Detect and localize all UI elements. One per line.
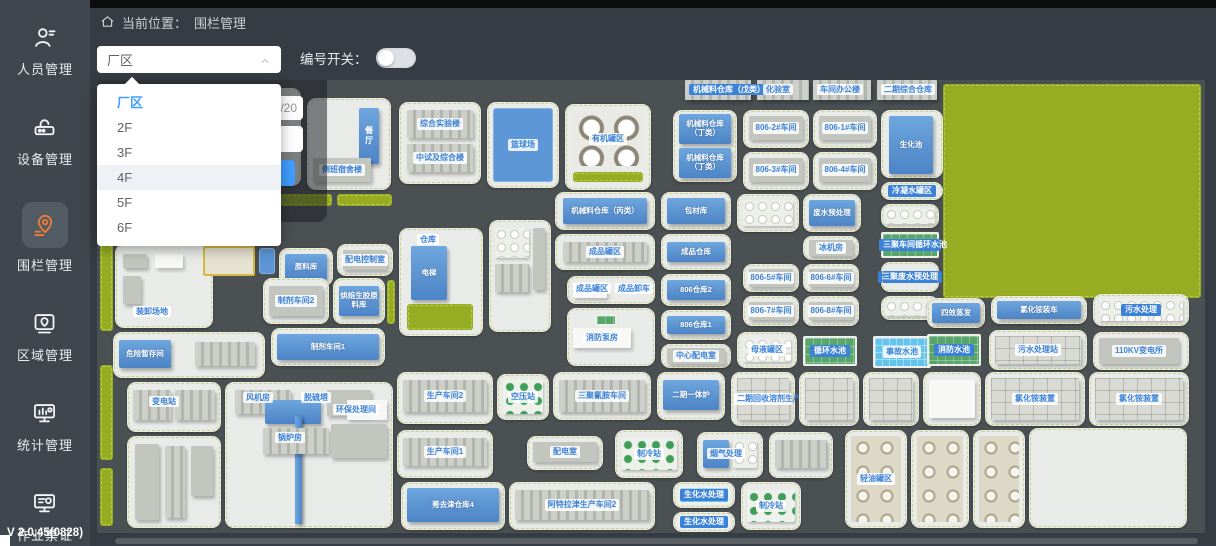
- map-chip: 二期综合仓库: [881, 84, 935, 95]
- map-cx: [805, 378, 853, 420]
- map-bb: 二期一体炉: [663, 380, 719, 410]
- map-bg: [135, 444, 159, 520]
- sidebar-item-label: 统计管理: [17, 435, 73, 454]
- building-label: 806仓库1: [680, 321, 712, 330]
- map-gd: 制冷站: [747, 490, 795, 522]
- dropdown-option-厂区[interactable]: 厂区: [97, 90, 281, 115]
- map-bw: [155, 254, 183, 268]
- building-label: 806-5#车间: [748, 272, 795, 283]
- building-label: 二期回收溶剂生产装置: [734, 393, 792, 404]
- toggle-knob: [378, 50, 394, 66]
- map-br: [175, 390, 215, 420]
- building-label: 机械料仓库（丁类）: [679, 154, 731, 171]
- map-bb: 成品仓库: [667, 242, 725, 262]
- building-label: 生化水处理: [680, 489, 728, 500]
- building-label: 三聚车间循环水池: [879, 239, 941, 250]
- number-toggle-switch[interactable]: [376, 48, 416, 68]
- map-chip: 机械料仓库（戊类）: [689, 84, 769, 95]
- map-pg: 消防水池: [927, 334, 981, 366]
- map-bb: 原料库: [285, 254, 327, 280]
- building-label: 篮球场: [508, 139, 538, 150]
- building-label: 中心配电室: [673, 350, 719, 361]
- building-label: 110KV变电所: [1112, 345, 1166, 356]
- map-chip: 仓库: [417, 234, 439, 245]
- map-tk: [979, 436, 1019, 522]
- building-label: 烘焙生胶原料库: [339, 292, 379, 309]
- map-chip: 脱硫塔: [301, 392, 331, 403]
- map-bg: 配电控制室: [343, 250, 387, 270]
- home-icon: [100, 14, 115, 32]
- number-toggle-label: 编号开关：: [300, 48, 368, 68]
- building-label: 配电控制室: [342, 254, 388, 265]
- map-bb: 危险暂存间: [119, 340, 171, 368]
- map-bb: 电梯: [411, 246, 447, 300]
- map-chip: 成品罐区: [573, 283, 611, 294]
- sidebar: 人员管理设备管理围栏管理区域管理统计管理作业票证 V 2.0.45(0828): [0, 0, 90, 546]
- map-pb: 事故水池: [873, 336, 931, 368]
- map-bb: 机械料仓库（丁类）: [679, 114, 731, 144]
- map-gd: 空压站: [503, 380, 543, 414]
- map-rg: 有机罐区: [573, 112, 643, 166]
- top-strip: [90, 0, 1216, 8]
- map-bg: 806-2#车间: [749, 116, 803, 140]
- map-dt: 母液罐区: [743, 338, 791, 362]
- building-label: 机械料仓库（丁类）: [679, 120, 731, 137]
- dropdown-option-2F[interactable]: 2F: [97, 115, 281, 140]
- sidebar-item-4[interactable]: 统计管理: [17, 398, 73, 454]
- fence-pin-icon: [22, 202, 68, 248]
- map-pb: 生化水处理: [678, 515, 730, 529]
- map-bb: 生化池: [889, 116, 933, 174]
- sidebar-item-label: 区域管理: [17, 345, 73, 364]
- building-label: 冰机房: [816, 242, 846, 253]
- map-bg: 806-5#车间: [749, 269, 793, 287]
- building-label: 原料库: [295, 263, 318, 272]
- map-pg: [595, 314, 617, 326]
- breadcrumb-label: 当前位置：: [122, 13, 187, 32]
- map-gr: [387, 280, 395, 324]
- building-label: 生化水处理: [680, 516, 728, 527]
- map-bg: 806-6#车间: [809, 269, 853, 287]
- building-label: 餐厅: [364, 126, 373, 146]
- map-cx: 污水处理站: [995, 336, 1081, 364]
- map-yl: [203, 246, 255, 276]
- building-label: 车间办公楼: [817, 84, 863, 95]
- building-label: 综合实验楼: [417, 118, 463, 129]
- map-gd: 制冷站: [621, 438, 677, 470]
- dropdown-option-6F[interactable]: 6F: [97, 215, 281, 240]
- map-p[interactable]: 三聚废水预处理: [881, 262, 939, 292]
- map-cx: 二期回收溶剂生产装置: [737, 378, 789, 420]
- map-cx: 氯化铵装置: [1095, 378, 1183, 420]
- map-bb: 氯化铵装车: [997, 301, 1081, 319]
- map-bg: [533, 228, 545, 290]
- building-label: 污水处理: [1121, 304, 1161, 315]
- map-bg: 制剂车间2: [269, 286, 323, 316]
- building-label: 消防泵房: [583, 332, 621, 343]
- map-bg: 110KV变电所: [1099, 338, 1179, 364]
- map-bb: 制剂车间1: [277, 334, 379, 360]
- building-label: 生化池: [900, 141, 923, 150]
- map-bb: 包材库: [667, 198, 725, 224]
- map-dt: [885, 208, 935, 224]
- map-pb: 生化水处理: [678, 486, 730, 504]
- building-label: 制冷站: [634, 448, 664, 459]
- building-label: 成品卸车: [615, 283, 653, 294]
- grass-field: [943, 84, 1201, 298]
- building-label: 806-4#车间: [822, 164, 869, 175]
- map-tk: 轻油罐区: [851, 436, 901, 522]
- map-pg: 三聚车间循环水池: [881, 232, 939, 258]
- building-label: 制剂车间1: [311, 343, 345, 352]
- building-label: 环保处理间: [333, 404, 379, 415]
- map-ct: [259, 248, 275, 274]
- app-root: 人员管理设备管理围栏管理区域管理统计管理作业票证 V 2.0.45(0828) …: [0, 0, 1216, 546]
- map-bg: 806-3#车间: [749, 158, 803, 182]
- building-label: 风机房: [243, 392, 273, 403]
- building-label: 烟气处理: [707, 448, 745, 459]
- map-bb: [265, 400, 321, 424]
- sidebar-item-1[interactable]: 设备管理: [17, 112, 73, 168]
- map-dt: [743, 200, 793, 226]
- floor-select[interactable]: 厂区: [97, 46, 281, 73]
- map-bb: 机械料仓库（丁类）: [679, 148, 731, 178]
- stats-monitor-icon: [30, 398, 60, 428]
- building-label: 危险暂存间: [126, 350, 164, 359]
- ticket-monitor-icon: [30, 488, 60, 518]
- map-gr: [337, 194, 392, 206]
- building-label: 四效蒸发: [941, 309, 971, 318]
- dropdown-option-3F[interactable]: 3F: [97, 140, 281, 165]
- building-label: 消防水池: [934, 344, 974, 355]
- map-gr: [100, 468, 113, 526]
- building-label: 仓库: [417, 234, 439, 245]
- building-label: 二期一体炉: [672, 391, 710, 400]
- map-bb: 机械料仓库（丙类）: [563, 198, 647, 224]
- map-dt: 污水处理: [1099, 299, 1183, 321]
- sidebar-item-0[interactable]: 人员管理: [17, 22, 73, 78]
- map-chip: 烟气处理: [707, 448, 745, 459]
- building-label: 变电站: [149, 396, 179, 407]
- map-bg: 806-8#车间: [809, 302, 853, 320]
- map-br: 阿特拉津生产车间2: [515, 490, 649, 520]
- building-label: 成品仓库: [681, 248, 711, 257]
- building-label: 电梯: [422, 269, 437, 278]
- map-chip: 变电站: [149, 396, 179, 407]
- map-bb: 废水预处理: [809, 200, 855, 226]
- map-tk: [917, 436, 963, 522]
- building-label: 成品罐区: [573, 283, 611, 294]
- map-gr: [407, 304, 473, 330]
- building-label: 生产车间2: [424, 390, 466, 401]
- building-label: 成品罐区: [586, 246, 624, 257]
- map-cx: [869, 378, 913, 420]
- floor-dropdown: 厂区2F3F4F5F6F: [97, 84, 281, 246]
- map-p[interactable]: [1029, 428, 1187, 528]
- corner-square: [0, 535, 10, 546]
- main-content: 当前位置： 围栏管理 厂区 编号开关： 0/20 ） 餐厅倒班宿舍楼综合实验楼中…: [90, 0, 1216, 546]
- map-bg: 冰机房: [809, 240, 853, 256]
- building-label: 806-1#车间: [822, 122, 869, 133]
- sidebar-item-label: 设备管理: [17, 149, 73, 168]
- building-label: 806-2#车间: [753, 122, 800, 133]
- device-icon: [30, 112, 60, 142]
- building-label: 氯化铵装置: [1116, 393, 1162, 404]
- building-label: 806-6#车间: [808, 272, 855, 283]
- app-version: V 2.0.45(0828): [0, 527, 90, 539]
- building-label: 制冷站: [756, 500, 786, 511]
- map-chip: 风机房: [243, 392, 273, 403]
- building-label: 二期综合仓库: [881, 84, 935, 95]
- building-label: 氯化铵装车: [1020, 306, 1058, 315]
- building-label: 806-7#车间: [748, 305, 795, 316]
- dropdown-option-4F[interactable]: 4F: [97, 165, 281, 190]
- map-bg: 中心配电室: [667, 348, 725, 364]
- map-bg: [191, 446, 213, 496]
- building-label: 机械料仓库（戊类）: [689, 84, 769, 95]
- building-label: 化验室: [763, 84, 793, 95]
- sidebar-item-3[interactable]: 区域管理: [17, 308, 73, 364]
- building-label: 806-8#车间: [808, 305, 855, 316]
- building-label: 806-3#车间: [753, 164, 800, 175]
- map-cx: 氯化铵装置: [991, 378, 1079, 420]
- building-label: 脱硫塔: [301, 392, 331, 403]
- region-map-icon: [30, 308, 60, 338]
- building-label: 空压站: [508, 391, 538, 402]
- building-label: 三聚氰胺车间: [575, 390, 629, 401]
- map-bb: 烘焙生胶原料库: [339, 286, 379, 316]
- building-label: 母液罐区: [748, 344, 786, 355]
- building-label: 三聚废水预处理: [878, 271, 942, 282]
- map-chip: 环保处理间: [333, 404, 379, 415]
- map-bg: 806-4#车间: [819, 158, 871, 182]
- map-chip: 装卸场地: [133, 306, 171, 317]
- building-label: 污水处理站: [1015, 344, 1061, 355]
- building-label: 配电室: [550, 446, 580, 457]
- number-toggle-row: 编号开关：: [300, 48, 416, 68]
- dropdown-option-5F[interactable]: 5F: [97, 190, 281, 215]
- map-br: 中试及综合楼: [407, 144, 473, 172]
- map-br: 成品罐区: [563, 242, 647, 262]
- map-br: [195, 342, 255, 366]
- map-br: 生产车间2: [403, 380, 487, 412]
- map-br: 生产车间1: [403, 438, 487, 466]
- map-bg: 806-1#车间: [819, 116, 871, 140]
- map-chip: 消防泵房: [583, 332, 621, 343]
- map-bg: [331, 424, 387, 458]
- building-label: 事故水池: [883, 346, 921, 357]
- building-label: 有机罐区: [589, 133, 627, 144]
- building-label: 806仓库2: [680, 286, 712, 295]
- map-chip: 车间办公楼: [817, 84, 863, 95]
- sidebar-item-label: 围栏管理: [17, 255, 73, 274]
- building-label: 冷凝水罐区: [888, 185, 936, 196]
- building-label: 包材库: [685, 207, 708, 216]
- sidebar-menu: 人员管理设备管理围栏管理区域管理统计管理作业票证: [17, 22, 73, 544]
- map-bb: 莠去津仓库4: [407, 488, 499, 522]
- map-bb: 四效蒸发: [932, 303, 980, 323]
- building-label: 机械料仓库（丙类）: [571, 207, 639, 216]
- building-label: 莠去津仓库4: [432, 501, 474, 510]
- bldg-canteen: 餐厅: [359, 108, 379, 164]
- building-label: 制剂车间2: [275, 295, 317, 306]
- map-br: 三聚氰胺车间: [559, 380, 645, 412]
- breadcrumb-value: 围栏管理: [194, 13, 246, 32]
- map-gr: [100, 365, 113, 460]
- map-dt: [495, 228, 529, 258]
- map-p[interactable]: 冷凝水罐区: [881, 182, 943, 200]
- map-chip: 化验室: [763, 84, 793, 95]
- sidebar-item-2[interactable]: 围栏管理: [17, 202, 73, 274]
- floor-select-value: 厂区: [107, 50, 133, 69]
- map-chip: 锅炉房: [275, 432, 305, 443]
- bldg-basketball-court: 篮球场: [493, 108, 553, 182]
- building-label: 废水预处理: [813, 209, 851, 218]
- building-label: 生产车间1: [424, 446, 466, 457]
- map-bw: [929, 380, 975, 418]
- map-br: [165, 446, 185, 518]
- map-bg: [123, 276, 141, 304]
- map-bg: [123, 254, 147, 268]
- map-chip: 成品卸车: [615, 283, 653, 294]
- horizontal-scrollbar[interactable]: [115, 538, 1198, 544]
- building-label: 中试及综合楼: [413, 152, 467, 163]
- sidebar-item-label: 人员管理: [17, 59, 73, 78]
- building-label: 装卸场地: [133, 306, 171, 317]
- map-pg: 循环水池: [803, 336, 857, 366]
- map-gr: [573, 172, 643, 182]
- building-label: 阿特拉津生产车间2: [545, 499, 619, 510]
- map-bb: 806仓库1: [667, 316, 725, 334]
- map-bg: 806-7#车间: [749, 302, 793, 320]
- chevron-up-icon: [259, 54, 271, 66]
- map-bg: 配电室: [533, 442, 597, 462]
- building-label: 轻油罐区: [857, 473, 895, 484]
- building-label: 锅炉房: [275, 432, 305, 443]
- building-label: 氯化铵装置: [1012, 393, 1058, 404]
- map-br: 综合实验楼: [407, 110, 473, 138]
- person-icon: [30, 22, 60, 52]
- map-br: [495, 264, 529, 292]
- building-label: 循环水池: [810, 345, 850, 356]
- map-br: [775, 440, 827, 468]
- map-bb: 806仓库2: [667, 280, 725, 300]
- breadcrumb: 当前位置： 围栏管理: [100, 13, 246, 32]
